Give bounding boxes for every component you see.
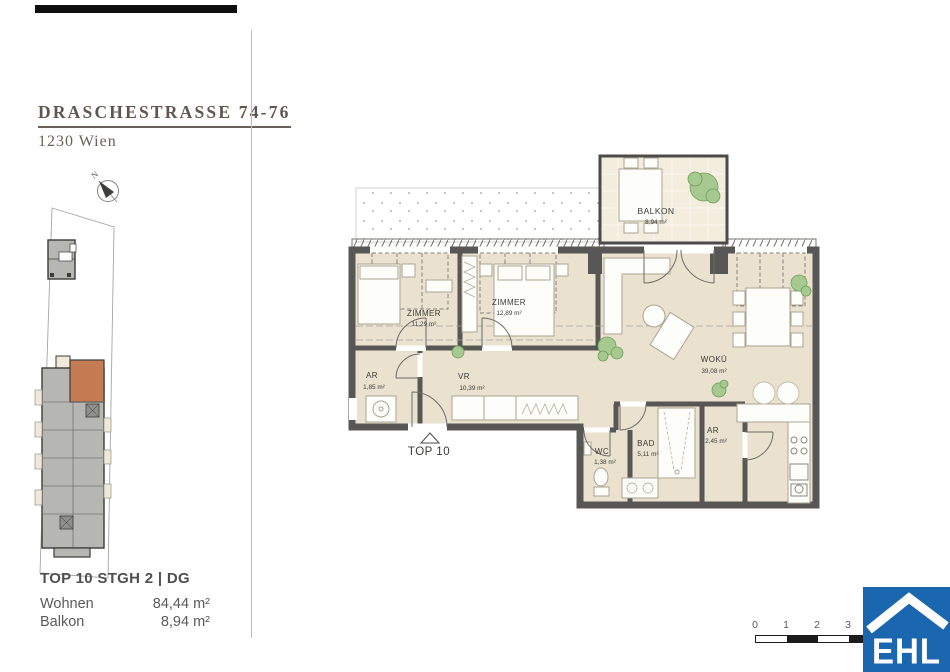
room-label: WOKÜ	[701, 355, 728, 364]
kitchen-counter	[737, 404, 810, 422]
room-area: 12,89 m²	[496, 310, 521, 317]
room-label: BALKON	[638, 206, 675, 216]
scale-tick: 2	[814, 619, 820, 631]
room-area: 11,29 m²	[412, 321, 437, 328]
room-label: WC	[595, 447, 609, 456]
room-label: AR	[366, 371, 378, 380]
page-title: DRASCHESTRASSE 74-76	[38, 102, 291, 128]
room-area: 8,94 m²	[645, 219, 667, 226]
dining-table	[746, 288, 790, 346]
room-label: BAD	[637, 439, 655, 448]
unit-info-label: Wohnen	[40, 595, 94, 613]
toilet	[594, 468, 608, 486]
unit-info-row: Wohnen 84,44 m²	[40, 595, 210, 613]
site-plan: N	[20, 165, 130, 585]
terrace-dotted-area	[356, 188, 602, 242]
scale-bar-segments	[755, 635, 867, 643]
scale-tick: 1	[783, 619, 789, 631]
unit-info-value: 8,94 m²	[161, 613, 210, 631]
scale-tick: 3	[845, 619, 851, 631]
entrance-label: TOP 10	[408, 446, 450, 458]
room-label: AR	[707, 426, 719, 435]
unit-info: TOP 10 STGH 2 | DG Wohnen 84,44 m² Balko…	[40, 570, 210, 631]
vertical-divider	[251, 30, 252, 638]
shower	[658, 408, 695, 478]
compass-icon: N	[89, 169, 118, 202]
room-label: ZIMMER	[407, 309, 441, 318]
desk	[426, 280, 452, 292]
room-area: 1,38 m²	[594, 459, 616, 466]
site-main-building	[35, 356, 111, 557]
plan-sheet: DRASCHESTRASSE 74-76 1230 Wien N	[0, 0, 950, 672]
unit-info-row: Balkon 8,94 m²	[40, 613, 210, 631]
balcony: BALKON 8,94 m²	[600, 156, 727, 243]
coffee-table	[643, 305, 665, 327]
room-area: 1,85 m²	[363, 384, 385, 391]
room-label: VR	[458, 372, 470, 381]
room-area: 39,08 m²	[701, 368, 726, 375]
site-highlighted-unit	[70, 360, 104, 402]
header: DRASCHESTRASSE 74-76 1230 Wien	[38, 102, 291, 151]
stool	[777, 382, 799, 404]
ehl-logo-text: EHL	[863, 631, 950, 671]
compass-n-label: N	[89, 169, 100, 181]
unit-info-label: Balkon	[40, 613, 84, 631]
site-small-building	[48, 240, 76, 279]
room-area: 5,11 m²	[637, 451, 658, 458]
entrance-marker-icon	[421, 433, 439, 443]
scale-tick: 0	[752, 619, 758, 631]
unit-info-value: 84,44 m²	[153, 595, 210, 613]
hall-wardrobe	[452, 396, 578, 420]
ehl-logo: EHL	[863, 587, 950, 672]
vanity	[622, 478, 658, 498]
unit-info-title: TOP 10 STGH 2 | DG	[40, 570, 210, 587]
room-area: 2,45 m²	[705, 438, 727, 445]
page-subtitle: 1230 Wien	[38, 133, 291, 151]
washing-machine	[366, 396, 396, 422]
floor-plan: BALKON 8,94 m²	[330, 120, 950, 540]
room-label: ZIMMER	[492, 298, 526, 307]
stool	[753, 382, 775, 404]
room-area: 10,39 m²	[459, 385, 484, 392]
top-accent-bar	[35, 5, 237, 13]
